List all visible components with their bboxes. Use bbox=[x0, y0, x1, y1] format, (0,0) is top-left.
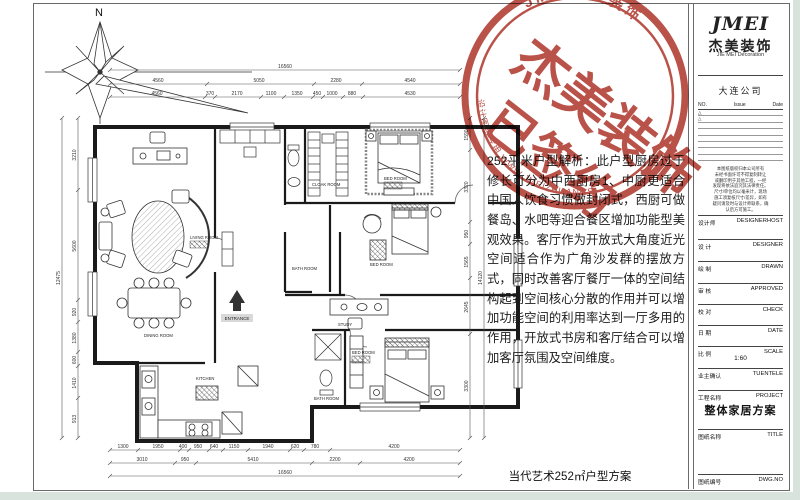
svg-text:3010: 3010 bbox=[136, 457, 147, 463]
svg-text:370: 370 bbox=[206, 91, 215, 97]
svg-text:BED ROOM: BED ROOM bbox=[370, 262, 393, 267]
svg-text:400: 400 bbox=[179, 444, 188, 450]
field-designer: 设 计DESIGNER bbox=[698, 239, 783, 251]
svg-text:620: 620 bbox=[291, 444, 300, 450]
svg-text:4200: 4200 bbox=[403, 457, 414, 463]
title-block: JMEI 杰美装饰 JIE MEI Decoration 大连公司 NO. Is… bbox=[694, 3, 787, 489]
entrance-arrow: ENTRANCE bbox=[221, 290, 253, 322]
drawing-title: 当代艺术252㎡户型方案 bbox=[480, 468, 660, 484]
svg-text:1100: 1100 bbox=[266, 91, 277, 97]
svg-text:920: 920 bbox=[72, 308, 78, 317]
svg-text:5410: 5410 bbox=[247, 457, 258, 463]
svg-text:CLOAK ROOM: CLOAK ROOM bbox=[312, 182, 341, 187]
svg-text:1940: 1940 bbox=[262, 444, 273, 450]
svg-text:LIVING ROOM: LIVING ROOM bbox=[190, 235, 218, 240]
bottom-bedroom-furniture bbox=[350, 336, 444, 402]
svg-text:12475: 12475 bbox=[56, 271, 62, 285]
svg-text:913: 913 bbox=[72, 415, 78, 424]
svg-text:1150: 1150 bbox=[229, 444, 240, 450]
svg-text:3210: 3210 bbox=[72, 149, 78, 160]
svg-text:2645: 2645 bbox=[464, 301, 470, 312]
field-title: 图纸名称TITLE bbox=[698, 429, 783, 441]
svg-text:KITCHEN: KITCHEN bbox=[196, 376, 214, 381]
svg-text:14120: 14120 bbox=[478, 271, 484, 285]
interior-walls bbox=[137, 127, 518, 407]
svg-text:5050: 5050 bbox=[253, 78, 264, 84]
svg-text:BED ROOM: BED ROOM bbox=[384, 176, 407, 181]
svg-text:1380: 1380 bbox=[72, 332, 78, 343]
rev-date-header: Date bbox=[772, 102, 783, 108]
svg-text:5600: 5600 bbox=[72, 240, 78, 251]
project-name: 整体家居方案 bbox=[694, 402, 787, 418]
svg-text:3320: 3320 bbox=[464, 181, 470, 192]
svg-text:BATH ROOM: BATH ROOM bbox=[292, 266, 318, 271]
field-tuentele: 业主确认TUENTELE bbox=[698, 368, 783, 380]
svg-text:STUDY: STUDY bbox=[338, 322, 352, 327]
svg-text:600: 600 bbox=[72, 356, 78, 365]
svg-text:2170: 2170 bbox=[231, 91, 242, 97]
field-approved: 审 核APPROVED bbox=[698, 283, 783, 295]
svg-text:780: 780 bbox=[311, 444, 320, 450]
svg-text:4530: 4530 bbox=[404, 91, 415, 97]
svg-text:950: 950 bbox=[194, 444, 203, 450]
svg-text:1410: 1410 bbox=[72, 377, 78, 388]
field-drawn: 绘 制DRAWN bbox=[698, 261, 783, 273]
rev-no-header: NO. bbox=[698, 102, 707, 108]
svg-text:1950: 1950 bbox=[152, 444, 163, 450]
drawing-sheet-page: { "sheet": { "bottom_title": "当代艺术252㎡户型… bbox=[0, 0, 800, 500]
svg-text:1350: 1350 bbox=[291, 91, 302, 97]
dining-room-furniture bbox=[117, 278, 191, 328]
branch-name: 大连公司 bbox=[694, 84, 787, 97]
middle-bedroom-furniture bbox=[363, 204, 441, 260]
svg-text:4560: 4560 bbox=[151, 91, 162, 97]
svg-text:4540: 4540 bbox=[404, 78, 415, 84]
svg-text:1300: 1300 bbox=[117, 444, 128, 450]
field-check: 校 对CHECK bbox=[698, 304, 783, 316]
bottom-bathroom-fixtures bbox=[315, 334, 341, 395]
svg-text:BATH ROOM: BATH ROOM bbox=[314, 396, 340, 401]
svg-text:950: 950 bbox=[464, 230, 470, 239]
field-date: 日 期DATE bbox=[698, 325, 783, 337]
rev-issue-header: Issue bbox=[734, 102, 746, 108]
svg-text:4200: 4200 bbox=[388, 444, 399, 450]
compass-n-label: N bbox=[95, 7, 103, 19]
jmei-logo: JMEI bbox=[694, 13, 787, 35]
room-labels: LIVING ROOM DINING ROOM KITCHEN CLOAK RO… bbox=[144, 176, 407, 401]
field-dwgno: 图纸编号DWG.NO bbox=[698, 474, 783, 486]
svg-text:16560: 16560 bbox=[278, 64, 292, 70]
rev-row bbox=[698, 155, 783, 161]
revision-table: NO. Issue Date △ △ bbox=[698, 102, 783, 161]
svg-text:4560: 4560 bbox=[152, 78, 163, 84]
svg-text:16560: 16560 bbox=[278, 470, 292, 476]
svg-text:3300: 3300 bbox=[464, 380, 470, 391]
plan-description-text: 252平米户型解析：此户型厨房过于修长可分为中西厨房1、中厨更适合中国人饮食习惯… bbox=[487, 152, 685, 368]
company-name-en: JIE MEI Decoration bbox=[694, 52, 787, 58]
north-compass-icon: N bbox=[45, 7, 252, 124]
living-room-furniture bbox=[99, 132, 209, 278]
svg-text:1590: 1590 bbox=[464, 129, 470, 140]
svg-text:450: 450 bbox=[313, 91, 322, 97]
svg-text:1000: 1000 bbox=[326, 91, 337, 97]
field-designerhost: 设计师DESIGNERHOST bbox=[698, 215, 783, 227]
svg-text:2280: 2280 bbox=[330, 78, 341, 84]
scale-value: 1:60 bbox=[698, 355, 783, 362]
svg-text:880: 880 bbox=[348, 91, 357, 97]
hallway-cabinets bbox=[220, 130, 280, 266]
paper-sheet: N bbox=[0, 0, 793, 492]
svg-text:2200: 2200 bbox=[329, 457, 340, 463]
svg-text:BED ROOM: BED ROOM bbox=[352, 350, 375, 355]
disclaimer-text: 本图纸版权归本公司所有 未经书面许可不得复制转让 或翻印用于其他工程，一经 发现… bbox=[700, 166, 781, 212]
divider bbox=[698, 75, 783, 76]
svg-text:DINING ROOM: DINING ROOM bbox=[144, 333, 173, 338]
field-project: 工程名称PROJECT bbox=[698, 390, 783, 402]
top-bathroom-fixtures bbox=[288, 145, 300, 187]
entrance-label: ENTRANCE bbox=[225, 316, 250, 321]
svg-text:1565: 1565 bbox=[464, 256, 470, 267]
svg-text:640: 640 bbox=[210, 444, 219, 450]
svg-text:950: 950 bbox=[181, 457, 190, 463]
